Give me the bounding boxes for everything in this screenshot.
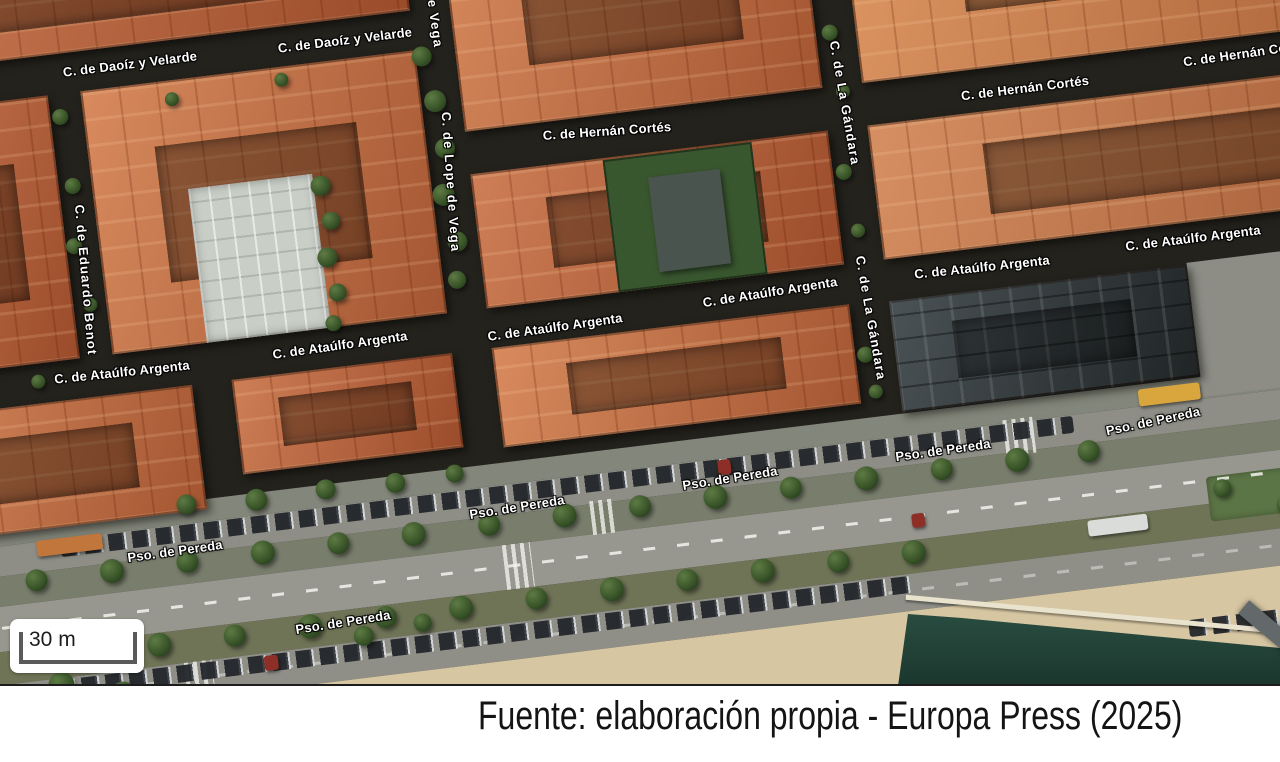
vehicle [263,655,279,672]
plaza [188,174,331,343]
city-block [232,353,464,474]
city-block [833,0,1280,83]
map-imagery [0,0,1280,686]
tree-icon [850,223,866,239]
tree-icon [31,374,47,390]
page: C. de Daoíz y VelardeC. de Daoíz y Velar… [0,0,1280,762]
scale-value: 30 m [29,628,76,652]
crosswalk [589,498,619,535]
tree-icon [51,108,69,126]
tree-icon [423,89,448,114]
courtyard [648,169,731,272]
tree-icon [64,177,82,195]
tree-icon [868,384,884,400]
city-block [436,0,823,132]
tree-icon [821,24,839,42]
caption-text: Fuente: elaboración propia - Europa Pres… [478,694,1182,739]
map-scale-bar: 30 m [10,619,144,673]
road-strip [1186,230,1280,397]
satellite-map[interactable]: C. de Daoíz y VelardeC. de Daoíz y Velar… [0,0,1280,686]
caption-bar: Fuente: elaboración propia - Europa Pres… [0,686,1280,762]
vehicle [911,513,926,528]
tree-icon [447,270,467,290]
